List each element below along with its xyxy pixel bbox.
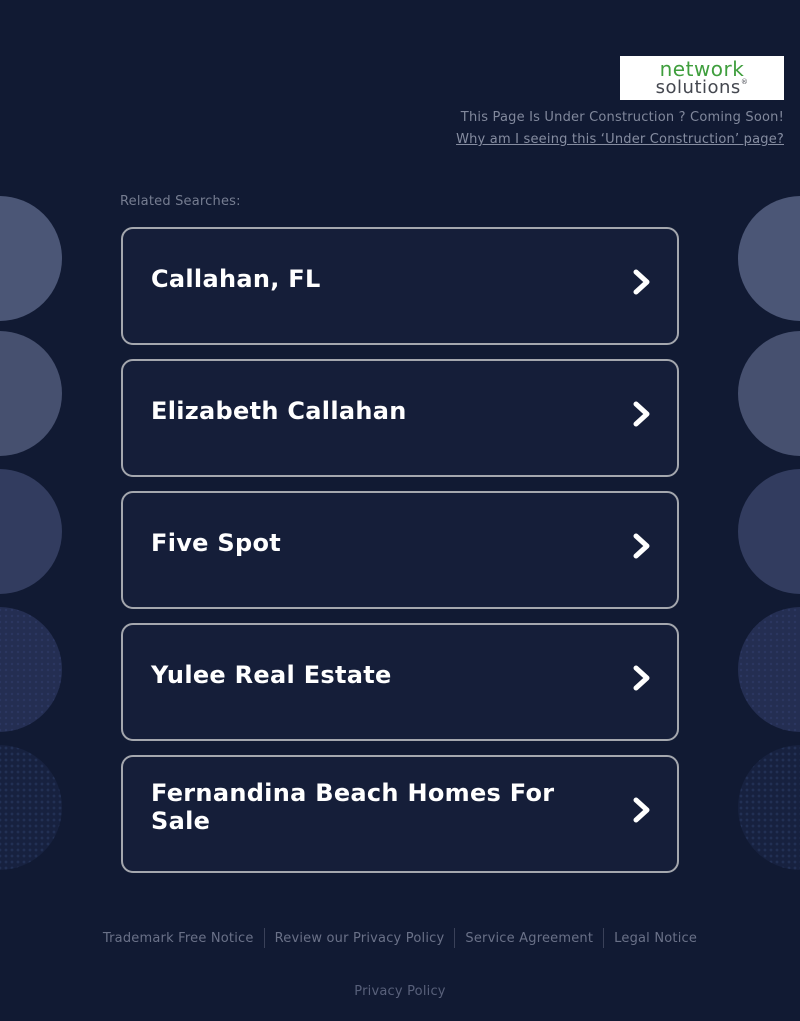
- decorative-circle: [738, 331, 800, 456]
- chevron-right-icon: [631, 797, 653, 823]
- legal-notice-link[interactable]: Legal Notice: [604, 931, 707, 946]
- decorative-circle: [0, 607, 62, 732]
- card-title: Yulee Real Estate: [151, 661, 392, 689]
- under-construction-page: network solutions® This Page Is Under Co…: [0, 0, 800, 1021]
- related-search-card-fernandina-beach-homes[interactable]: Fernandina Beach Homes For Sale: [121, 755, 679, 873]
- decorative-circle: [738, 607, 800, 732]
- chevron-right-icon: [631, 269, 653, 295]
- chevron-right-icon: [631, 533, 653, 559]
- chevron-right-icon: [631, 401, 653, 427]
- network-solutions-logo: network solutions®: [620, 56, 784, 100]
- under-construction-message: This Page Is Under Construction ? Coming…: [461, 110, 784, 125]
- decorative-circle: [0, 469, 62, 594]
- card-title: Five Spot: [151, 529, 281, 557]
- service-agreement-link[interactable]: Service Agreement: [455, 931, 603, 946]
- decorative-circle: [0, 745, 62, 870]
- decorative-circle: [738, 196, 800, 321]
- decorative-circle: [0, 331, 62, 456]
- card-title: Fernandina Beach Homes For Sale: [151, 779, 607, 835]
- trademark-free-notice-link[interactable]: Trademark Free Notice: [93, 931, 264, 946]
- related-searches-label: Related Searches:: [120, 194, 241, 209]
- related-search-card-five-spot[interactable]: Five Spot: [121, 491, 679, 609]
- card-title: Callahan, FL: [151, 265, 321, 293]
- footer-links: Trademark Free Notice Review our Privacy…: [0, 928, 800, 948]
- related-searches-list: Callahan, FL Elizabeth Callahan Five Spo…: [121, 227, 679, 887]
- why-seeing-this-page-link[interactable]: Why am I seeing this ‘Under Construction…: [456, 132, 784, 147]
- card-title: Elizabeth Callahan: [151, 397, 407, 425]
- related-search-card-callahan-fl[interactable]: Callahan, FL: [121, 227, 679, 345]
- related-search-card-yulee-real-estate[interactable]: Yulee Real Estate: [121, 623, 679, 741]
- decorative-circle: [738, 469, 800, 594]
- decorative-circle: [738, 745, 800, 870]
- privacy-policy-link[interactable]: Privacy Policy: [0, 984, 800, 999]
- logo-text-solutions: solutions®: [656, 79, 749, 97]
- registered-mark-icon: ®: [741, 78, 749, 86]
- related-search-card-elizabeth-callahan[interactable]: Elizabeth Callahan: [121, 359, 679, 477]
- logo-text-network: network: [660, 59, 745, 79]
- review-privacy-policy-link[interactable]: Review our Privacy Policy: [265, 931, 455, 946]
- decorative-circle: [0, 196, 62, 321]
- chevron-right-icon: [631, 665, 653, 691]
